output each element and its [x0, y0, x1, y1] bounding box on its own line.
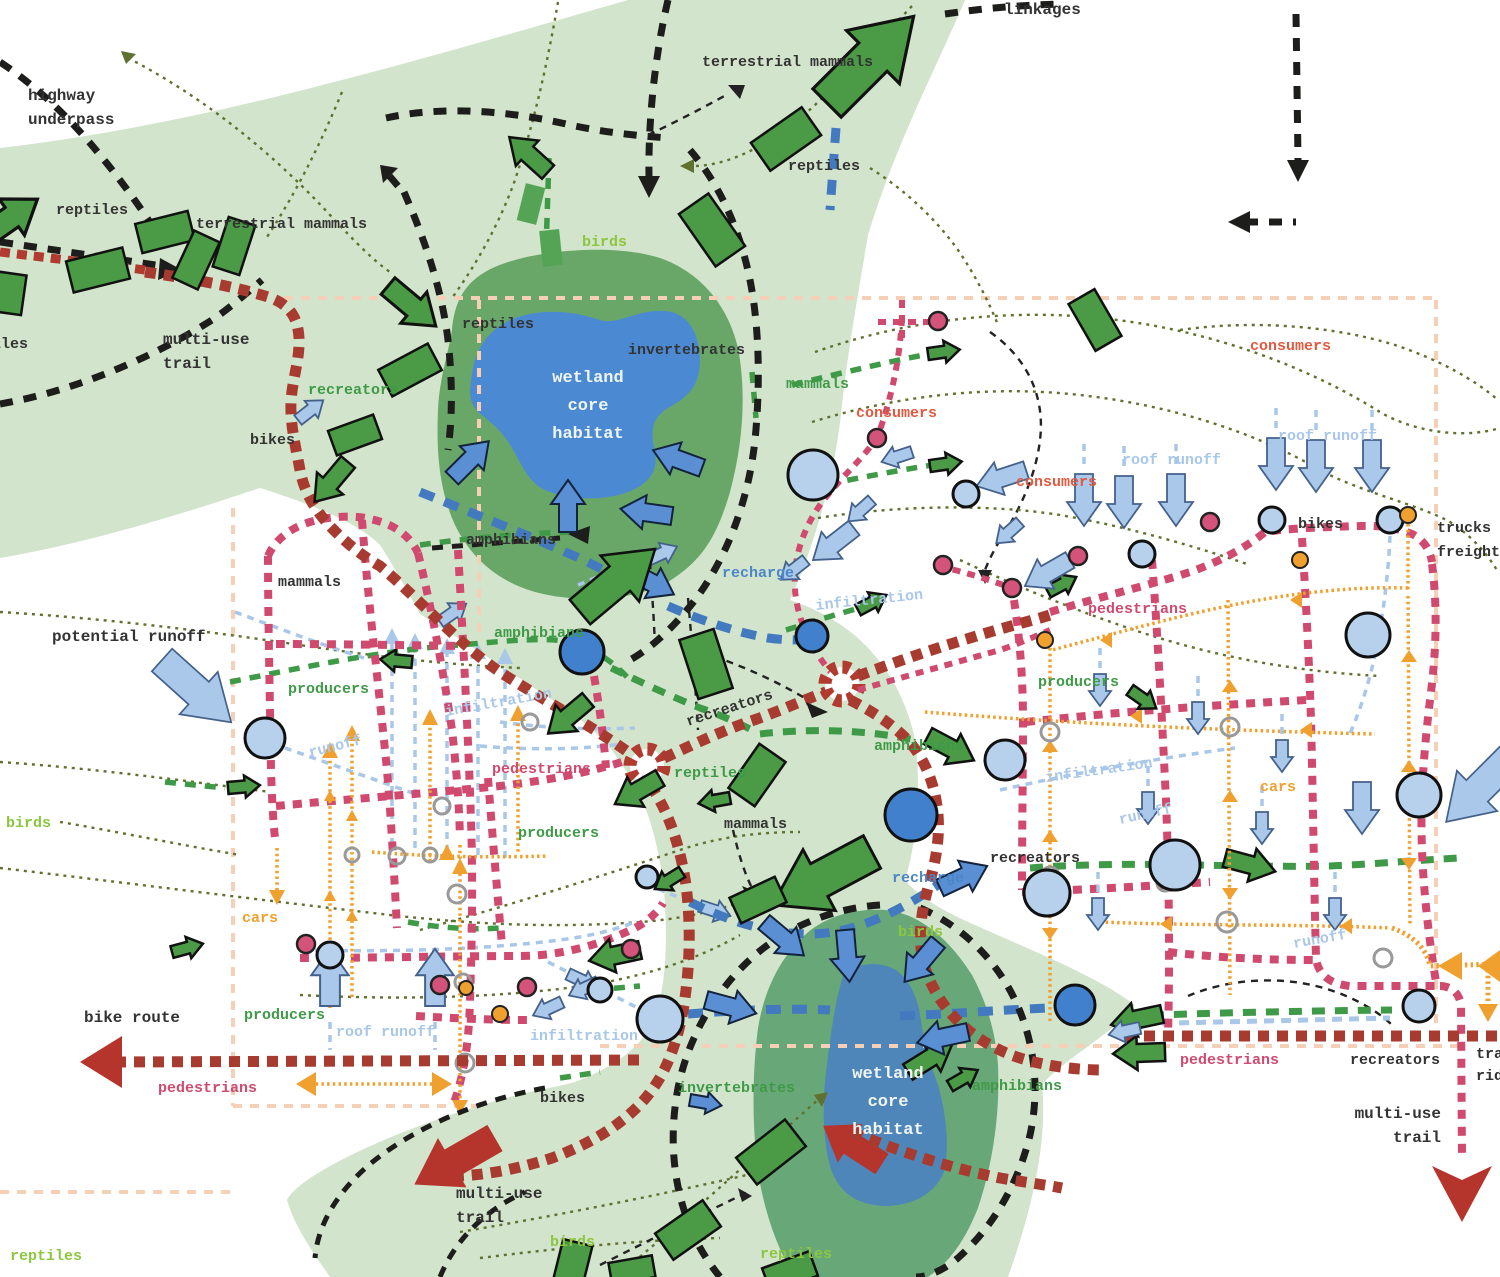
svg-text:producers: producers — [288, 681, 369, 698]
svg-text:consumers: consumers — [1016, 474, 1097, 491]
svg-text:bikes: bikes — [540, 1090, 585, 1107]
svg-text:producers: producers — [518, 825, 599, 842]
svg-text:reptiles: reptiles — [462, 316, 534, 333]
svg-text:birds: birds — [550, 1234, 595, 1251]
svg-text:habitat: habitat — [852, 1121, 923, 1140]
svg-text:mammals: mammals — [786, 376, 849, 393]
svg-text:trucks: trucks — [1437, 520, 1491, 537]
svg-text:core: core — [868, 1093, 909, 1112]
svg-text:rid: rid — [1476, 1068, 1500, 1085]
svg-text:reptiles: reptiles — [10, 1248, 82, 1265]
svg-text:consumers: consumers — [1250, 338, 1331, 355]
svg-text:multi-use: multi-use — [163, 331, 249, 349]
svg-text:birds: birds — [582, 234, 627, 251]
svg-text:multi-use: multi-use — [456, 1185, 542, 1203]
svg-text:pedestrians: pedestrians — [1180, 1052, 1279, 1069]
svg-text:invertebrates: invertebrates — [628, 342, 745, 359]
svg-text:infiltration: infiltration — [530, 1028, 638, 1045]
svg-text:mammals: mammals — [278, 574, 341, 591]
svg-text:underpass: underpass — [28, 111, 114, 129]
svg-text:bikes: bikes — [1298, 516, 1343, 533]
svg-text:reptiles: reptiles — [788, 158, 860, 175]
svg-text:cars: cars — [242, 910, 278, 927]
svg-text:multi-use: multi-use — [1355, 1105, 1441, 1123]
svg-text:producers: producers — [1038, 674, 1119, 691]
svg-text:pedestrians: pedestrians — [1088, 601, 1187, 618]
svg-text:highway: highway — [28, 87, 96, 105]
svg-text:recharge: recharge — [892, 870, 964, 887]
svg-text:iles: iles — [0, 336, 28, 353]
svg-text:amphibians: amphibians — [494, 625, 584, 642]
svg-text:pedestrians: pedestrians — [158, 1080, 257, 1097]
svg-text:pedestrians: pedestrians — [492, 761, 591, 778]
svg-text:mammals: mammals — [724, 816, 787, 833]
svg-text:roof runoff: roof runoff — [336, 1024, 435, 1041]
svg-text:amphibians: amphibians — [874, 738, 964, 755]
svg-text:invertebrates: invertebrates — [678, 1080, 795, 1097]
svg-text:core: core — [568, 397, 609, 416]
svg-text:potential runoff: potential runoff — [52, 628, 206, 646]
svg-text:amphibians: amphibians — [466, 532, 556, 549]
svg-text:recreators: recreators — [1350, 1052, 1440, 1069]
svg-text:terrestrial mammals: terrestrial mammals — [196, 216, 367, 233]
svg-text:birds: birds — [898, 924, 943, 941]
svg-text:reptiles: reptiles — [760, 1246, 832, 1263]
svg-text:trail: trail — [456, 1209, 504, 1227]
svg-text:consumers: consumers — [856, 405, 937, 422]
svg-text:recharge: recharge — [722, 565, 794, 582]
svg-text:trail: trail — [163, 355, 211, 373]
svg-text:reptiles: reptiles — [674, 765, 746, 782]
svg-text:birds: birds — [6, 815, 51, 832]
svg-text:reptiles: reptiles — [56, 202, 128, 219]
svg-text:terrestrial mammals: terrestrial mammals — [702, 54, 873, 71]
svg-text:amphibians: amphibians — [972, 1078, 1062, 1095]
svg-text:bikes: bikes — [250, 432, 295, 449]
svg-text:recreators: recreators — [990, 850, 1080, 867]
svg-text:tra: tra — [1476, 1046, 1500, 1063]
svg-text:freight: freight — [1437, 544, 1500, 561]
svg-text:cars: cars — [1260, 779, 1296, 796]
svg-text:wetland: wetland — [852, 1065, 923, 1084]
svg-text:roof runoff: roof runoff — [1278, 428, 1377, 445]
svg-text:habitat: habitat — [552, 425, 623, 444]
svg-text:bike route: bike route — [84, 1009, 180, 1027]
svg-text:trail: trail — [1393, 1129, 1441, 1147]
svg-text:recreators: recreators — [308, 382, 398, 399]
svg-text:producers: producers — [244, 1007, 325, 1024]
svg-text:roof runoff: roof runoff — [1122, 452, 1221, 469]
svg-text:wetland: wetland — [552, 369, 623, 388]
svg-text:linkages: linkages — [1004, 1, 1081, 19]
